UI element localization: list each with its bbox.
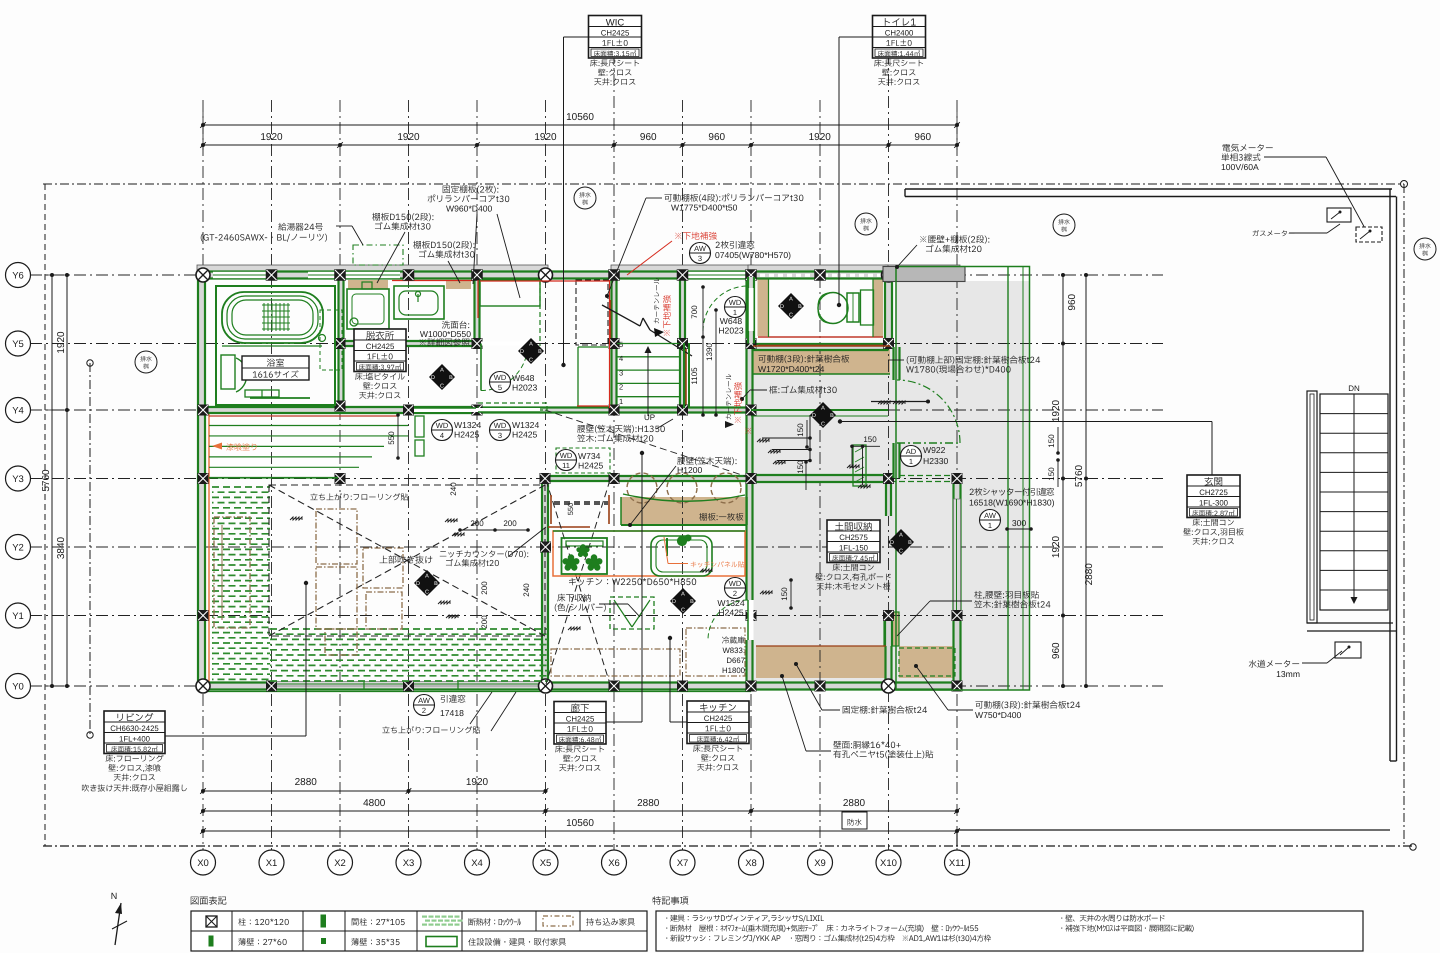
svg-text:Y0: Y0 bbox=[12, 682, 24, 693]
svg-text:2: 2 bbox=[619, 383, 623, 392]
svg-text:WD: WD bbox=[729, 579, 742, 588]
svg-text:17418: 17418 bbox=[440, 708, 464, 718]
svg-text:X7: X7 bbox=[677, 858, 689, 869]
svg-text:A: A bbox=[899, 533, 903, 539]
svg-text:W960*D400: W960*D400 bbox=[446, 204, 493, 214]
svg-text:960: 960 bbox=[1051, 642, 1062, 659]
svg-text:W1775*D400*t50: W1775*D400*t50 bbox=[671, 203, 738, 213]
svg-text:X11: X11 bbox=[949, 858, 965, 869]
svg-text:4800: 4800 bbox=[363, 798, 386, 809]
svg-text:CH2425: CH2425 bbox=[601, 28, 630, 37]
svg-text:13mm: 13mm bbox=[1276, 669, 1300, 679]
svg-text:150: 150 bbox=[780, 587, 789, 601]
svg-text:1FL+400: 1FL+400 bbox=[119, 734, 151, 743]
svg-text:X4: X4 bbox=[471, 858, 483, 869]
svg-text:200: 200 bbox=[503, 519, 517, 528]
svg-text:AW: AW bbox=[694, 244, 707, 253]
svg-text:W734: W734 bbox=[578, 451, 601, 461]
svg-text:A: A bbox=[529, 342, 533, 348]
svg-text:2880: 2880 bbox=[637, 798, 660, 809]
svg-text:CH6630-2425: CH6630-2425 bbox=[110, 724, 159, 733]
svg-text:1920: 1920 bbox=[397, 132, 420, 143]
svg-text:200: 200 bbox=[480, 615, 489, 629]
svg-text:5760: 5760 bbox=[1074, 464, 1085, 487]
svg-text:960: 960 bbox=[640, 132, 657, 143]
svg-text:WD: WD bbox=[729, 298, 742, 307]
svg-text:1: 1 bbox=[909, 457, 913, 466]
svg-text:550: 550 bbox=[566, 503, 575, 516]
svg-text:1920: 1920 bbox=[1051, 399, 1062, 422]
svg-text:Y5: Y5 bbox=[12, 339, 24, 350]
svg-text:X10: X10 bbox=[880, 858, 897, 869]
svg-text:W1324: W1324 bbox=[512, 420, 539, 430]
svg-text:H2330: H2330 bbox=[923, 456, 949, 466]
svg-text:C: C bbox=[681, 608, 685, 614]
svg-text:B: B bbox=[830, 413, 834, 419]
svg-text:B: B bbox=[798, 304, 802, 310]
svg-text:H2425: H2425 bbox=[718, 608, 744, 618]
svg-text:B: B bbox=[434, 581, 438, 587]
svg-text:1: 1 bbox=[619, 397, 623, 406]
svg-text:240: 240 bbox=[449, 482, 458, 496]
svg-text:X3: X3 bbox=[403, 858, 415, 869]
svg-text:X5: X5 bbox=[540, 858, 552, 869]
svg-text:W1720*D400*t24: W1720*D400*t24 bbox=[758, 364, 825, 374]
svg-text:1920: 1920 bbox=[466, 777, 489, 788]
svg-text:10560: 10560 bbox=[566, 112, 594, 123]
svg-text:B: B bbox=[538, 349, 542, 355]
svg-text:WD: WD bbox=[436, 421, 449, 430]
svg-text:H2023: H2023 bbox=[718, 326, 744, 336]
svg-text:AW: AW bbox=[418, 696, 431, 705]
svg-text:240: 240 bbox=[522, 583, 531, 597]
svg-text:2: 2 bbox=[733, 589, 737, 598]
svg-text:A: A bbox=[789, 297, 793, 303]
svg-text:200: 200 bbox=[470, 519, 484, 528]
svg-text:W1324: W1324 bbox=[454, 420, 481, 430]
svg-text:Y1: Y1 bbox=[12, 611, 24, 622]
svg-text:1920: 1920 bbox=[534, 132, 557, 143]
svg-text:960: 960 bbox=[1067, 293, 1078, 310]
svg-text:B: B bbox=[690, 599, 694, 605]
svg-text:B: B bbox=[908, 540, 912, 546]
svg-text:1105: 1105 bbox=[690, 367, 699, 385]
svg-text:D667: D667 bbox=[726, 656, 745, 665]
svg-text:Y4: Y4 bbox=[12, 406, 24, 417]
svg-text:C: C bbox=[440, 384, 444, 390]
svg-text:W1000*D550: W1000*D550 bbox=[420, 329, 471, 339]
svg-text:X1: X1 bbox=[266, 858, 278, 869]
svg-text:X2: X2 bbox=[334, 858, 346, 869]
svg-text:D: D bbox=[520, 349, 524, 355]
svg-text:X6: X6 bbox=[608, 858, 620, 869]
svg-text:H2023: H2023 bbox=[512, 383, 538, 393]
svg-text:960: 960 bbox=[708, 132, 725, 143]
svg-text:X0: X0 bbox=[197, 858, 209, 869]
svg-text:3840: 3840 bbox=[56, 536, 67, 559]
svg-text:3: 3 bbox=[698, 254, 702, 263]
svg-text:3: 3 bbox=[498, 431, 502, 440]
svg-text:D: D bbox=[890, 540, 894, 546]
svg-text:10560: 10560 bbox=[566, 818, 594, 829]
svg-text:C: C bbox=[899, 549, 903, 555]
svg-text:CH2400: CH2400 bbox=[885, 28, 914, 37]
svg-text:C: C bbox=[425, 590, 429, 596]
svg-text:16518(W1690*H1830): 16518(W1690*H1830) bbox=[969, 498, 1055, 508]
svg-text:C: C bbox=[529, 358, 533, 364]
svg-text:CH2425: CH2425 bbox=[704, 714, 733, 723]
svg-text:WD: WD bbox=[560, 451, 573, 460]
svg-text:200: 200 bbox=[480, 581, 489, 595]
svg-text:150: 150 bbox=[1047, 434, 1056, 448]
svg-text:1: 1 bbox=[988, 521, 992, 530]
svg-text:1920: 1920 bbox=[260, 132, 283, 143]
svg-text:H1800: H1800 bbox=[722, 666, 746, 675]
svg-text:1FL-300: 1FL-300 bbox=[1199, 498, 1229, 507]
svg-text:W833:: W833: bbox=[722, 646, 745, 655]
svg-text:UP: UP bbox=[644, 413, 655, 422]
svg-text:960: 960 bbox=[914, 132, 931, 143]
svg-text:CH2425: CH2425 bbox=[566, 714, 595, 723]
svg-text:100V/60A: 100V/60A bbox=[1221, 162, 1259, 172]
svg-text:11: 11 bbox=[562, 461, 570, 470]
svg-text:CH2575: CH2575 bbox=[839, 533, 868, 542]
svg-text:CH2425: CH2425 bbox=[366, 342, 395, 351]
svg-text:X9: X9 bbox=[814, 858, 826, 869]
svg-text:2880: 2880 bbox=[1084, 563, 1095, 586]
svg-text:H1200: H1200 bbox=[677, 465, 703, 475]
svg-text:150: 150 bbox=[1047, 467, 1056, 481]
svg-text:A: A bbox=[681, 592, 685, 598]
svg-text:300: 300 bbox=[1012, 518, 1027, 528]
svg-text:H2425: H2425 bbox=[512, 430, 538, 440]
svg-text:A: A bbox=[425, 574, 429, 580]
svg-text:C: C bbox=[821, 422, 825, 428]
svg-text:2: 2 bbox=[422, 706, 426, 715]
svg-text:5: 5 bbox=[619, 340, 623, 349]
svg-text:W750*D400: W750*D400 bbox=[975, 710, 1022, 720]
svg-text:DN: DN bbox=[1348, 384, 1360, 393]
svg-text:1920: 1920 bbox=[1051, 535, 1062, 558]
svg-text:W922: W922 bbox=[923, 445, 946, 455]
svg-text:D: D bbox=[780, 304, 784, 310]
svg-text:A: A bbox=[440, 368, 444, 374]
svg-text:150: 150 bbox=[863, 435, 877, 444]
svg-text:07405(W780*H570): 07405(W780*H570) bbox=[715, 250, 791, 260]
svg-text:5: 5 bbox=[498, 383, 502, 392]
svg-text:WD: WD bbox=[494, 373, 507, 382]
svg-text:AW: AW bbox=[984, 511, 997, 520]
svg-text:CH2725: CH2725 bbox=[1199, 488, 1228, 497]
svg-text:150: 150 bbox=[796, 423, 805, 437]
svg-text:2880: 2880 bbox=[843, 798, 866, 809]
svg-text:550: 550 bbox=[387, 431, 396, 445]
svg-text:X8: X8 bbox=[745, 858, 757, 869]
svg-text:D: D bbox=[672, 599, 676, 605]
svg-text:150: 150 bbox=[796, 460, 805, 474]
svg-text:1920: 1920 bbox=[56, 331, 67, 354]
svg-text:4: 4 bbox=[440, 431, 444, 440]
svg-text:Y6: Y6 bbox=[12, 271, 24, 282]
svg-text:H2425: H2425 bbox=[454, 430, 480, 440]
svg-text:Y3: Y3 bbox=[12, 474, 24, 485]
svg-text:WD: WD bbox=[494, 421, 507, 430]
svg-text:1FL-150: 1FL-150 bbox=[839, 543, 869, 552]
svg-text:700: 700 bbox=[690, 305, 699, 319]
svg-text:3: 3 bbox=[619, 368, 623, 377]
svg-text:H2425: H2425 bbox=[578, 461, 604, 471]
svg-text:5760: 5760 bbox=[41, 469, 52, 492]
svg-text:W648: W648 bbox=[720, 316, 743, 326]
svg-text:D: D bbox=[812, 413, 816, 419]
svg-text:B: B bbox=[449, 375, 453, 381]
svg-text:1920: 1920 bbox=[809, 132, 832, 143]
svg-text:D: D bbox=[431, 375, 435, 381]
svg-text:Y2: Y2 bbox=[12, 543, 24, 554]
svg-text:W648: W648 bbox=[512, 373, 535, 383]
svg-text:A: A bbox=[821, 406, 825, 412]
svg-text:W1324: W1324 bbox=[717, 598, 744, 608]
svg-text:C: C bbox=[789, 313, 793, 319]
svg-text:4: 4 bbox=[619, 354, 623, 363]
svg-text:1390: 1390 bbox=[705, 343, 714, 361]
svg-text:AD: AD bbox=[906, 447, 917, 456]
svg-text:N: N bbox=[111, 891, 118, 901]
svg-text:D: D bbox=[416, 581, 420, 587]
svg-text:2880: 2880 bbox=[295, 777, 318, 788]
